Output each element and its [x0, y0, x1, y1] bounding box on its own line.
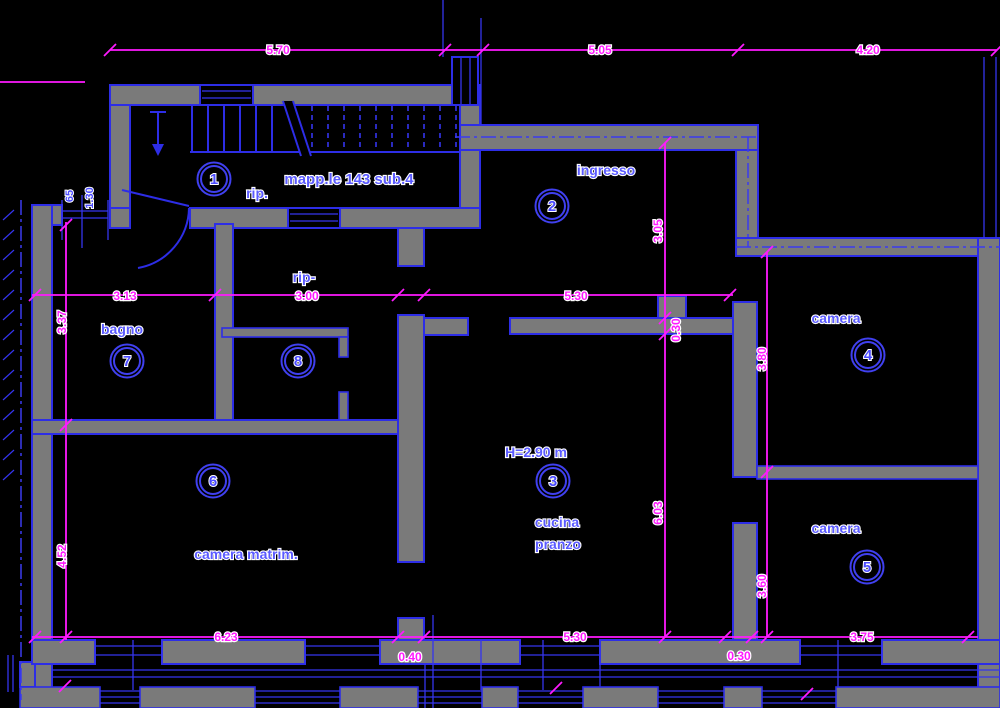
room-3-badge: 3	[537, 465, 570, 498]
dim-top-1: 5.70	[266, 43, 290, 57]
storage-label-top: rip.	[246, 185, 268, 201]
interior-walls	[32, 224, 978, 640]
room-4-label: camera	[811, 310, 860, 326]
exterior-walls	[20, 125, 1000, 695]
room-1-number: 1	[210, 171, 218, 188]
dim-bottom-5: 3.75	[850, 630, 874, 644]
dim-top-2: 5.05	[588, 43, 612, 57]
centerlines	[21, 137, 1000, 700]
dim-right-2: 3.60	[755, 574, 769, 598]
room-3-label-2: pranzo	[535, 536, 581, 552]
edge-hatching	[3, 210, 14, 480]
dim-center-3: 6.03	[651, 501, 665, 525]
dim-mid-3: 5.30	[564, 289, 588, 303]
dim-mid-2: 3.00	[295, 289, 319, 303]
dim-bottom-2: 0.40	[398, 650, 422, 664]
extension-lines	[443, 0, 996, 238]
parapet-wall	[20, 687, 1000, 708]
room-7-badge: 7	[111, 345, 144, 378]
room-2-label: ingresso	[577, 162, 635, 178]
dim-bottom-1: 6.23	[214, 630, 238, 644]
duct-box	[452, 57, 478, 105]
window-dim-1: 65	[64, 190, 76, 202]
entry-door	[122, 190, 190, 268]
stair-direction-arrow	[150, 112, 166, 156]
floor-plan-canvas: 5.70 5.05 4.20 3.13 3.00 5.30 6.23 0.40 …	[0, 0, 1000, 708]
room-7-number: 7	[123, 353, 131, 370]
window-dim-2: 1.30	[84, 187, 96, 208]
door-arc	[138, 208, 189, 268]
room-3-label-1: cucina	[535, 514, 580, 530]
room-5-badge: 5	[851, 551, 884, 584]
dim-mid-1: 3.13	[113, 289, 137, 303]
shaft-box	[200, 85, 253, 105]
room-4-number: 4	[864, 347, 873, 364]
dim-center-2: 0.30	[669, 318, 683, 342]
room-8-number: 8	[294, 353, 302, 370]
dim-top-3: 4.20	[856, 43, 880, 57]
parcel-label: mapp.le 143 sub.4	[284, 171, 414, 188]
room-1-badge: 1	[198, 163, 231, 196]
room-6-badge: 6	[197, 465, 230, 498]
room-3-number: 3	[549, 473, 557, 490]
room-8-badge: 8	[282, 345, 315, 378]
stairs	[150, 101, 460, 156]
room-2-badge: 2	[536, 190, 569, 223]
room-7-label: bagno	[101, 321, 143, 337]
room-6-label: camera matrim.	[194, 546, 298, 562]
room-5-label: camera	[811, 520, 860, 536]
ceiling-height-label: H=2.90 m	[505, 444, 567, 460]
dim-center-1: 3.05	[651, 219, 665, 243]
room-2-number: 2	[548, 198, 556, 215]
dim-right-1: 3.80	[755, 347, 769, 371]
storage-label-mid: rip-	[293, 269, 316, 285]
shaft-box	[288, 208, 340, 228]
room-5-number: 5	[863, 559, 871, 576]
room-4-badge: 4	[852, 339, 885, 372]
dim-bottom-4: 0.30	[727, 649, 751, 663]
stair-break-mask	[283, 101, 311, 156]
floor-plan: 5.70 5.05 4.20 3.13 3.00 5.30 6.23 0.40 …	[0, 0, 1000, 708]
dim-bottom-3: 5.30	[563, 630, 587, 644]
door-leaf	[122, 190, 189, 206]
dim-left-2: 4.52	[55, 544, 69, 568]
room-6-number: 6	[209, 473, 217, 490]
dim-left-1: 3.37	[55, 310, 69, 334]
